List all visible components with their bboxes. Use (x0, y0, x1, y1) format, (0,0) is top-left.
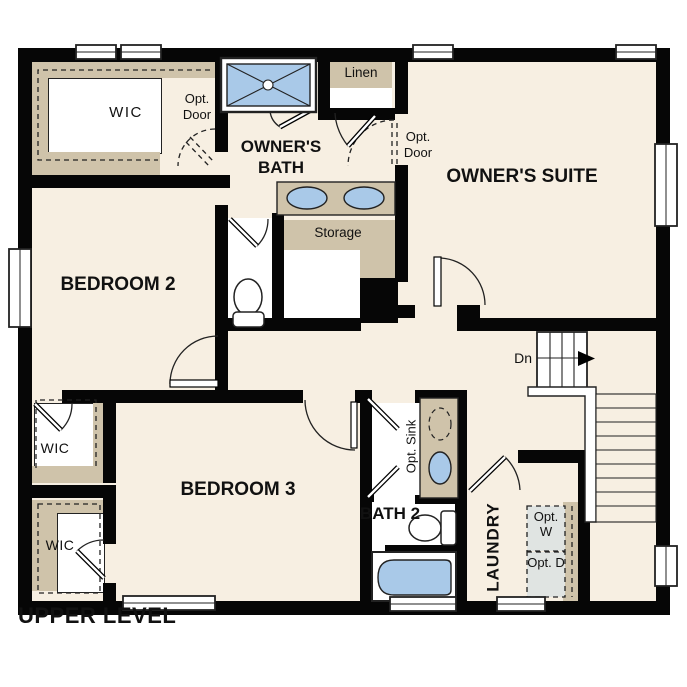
wall-bath-suite-lower (395, 165, 408, 282)
wall-bedroom2-top (18, 175, 230, 188)
wall-wic-bottom-right-b (103, 583, 116, 601)
storage-shelf-column (360, 250, 395, 278)
label-wic-top: WIC (96, 104, 156, 121)
wall-bath2-divider-b (415, 495, 455, 504)
wall-wic-bottom-right-a (103, 498, 116, 544)
label-stairs-down: Dn (496, 350, 532, 366)
label-owners-bath: OWNER'S BATH (226, 136, 336, 178)
wall-outer-top (18, 48, 670, 62)
wall-tub-alcove (385, 545, 455, 554)
wall-wic-divider (18, 485, 116, 498)
wall-hall-top (215, 318, 361, 331)
wall-laundry-right (578, 450, 590, 601)
wall-suite-bottom-a (395, 305, 415, 318)
wall-chase (360, 278, 398, 323)
floor-plan-upper-level: WIC Opt. Door Linen OWNER'S BATH Opt. Do… (0, 0, 687, 687)
wall-outer-right (656, 48, 670, 615)
label-opt-washer: Opt. W (527, 509, 565, 539)
label-laundry: LAUNDRY (484, 495, 504, 600)
label-linen: Linen (330, 65, 392, 81)
wic-top-shelving-top (32, 62, 215, 78)
wall-suite-bottom-corner (457, 305, 480, 331)
wall-bath2-right (455, 390, 467, 601)
wall-bedroom2-right (215, 205, 228, 390)
wall-wc-right (272, 213, 284, 331)
water-closet-floor (228, 218, 272, 318)
wic-top-shelving-bottom (32, 152, 160, 175)
label-wic-bottom: WIC (30, 537, 90, 553)
storage-floor (284, 247, 360, 318)
wic-mid-shelf-floor (34, 403, 95, 468)
wall-bath2-divider-a (360, 493, 374, 502)
label-bath2: BATH 2 (358, 504, 422, 524)
label-opt-door-left: Opt. Door (172, 91, 222, 123)
label-opt-sink: Opt. Sink (405, 401, 420, 493)
wall-linen-left (318, 62, 330, 110)
label-opt-dryer: Opt. D (527, 555, 565, 570)
label-storage: Storage (288, 225, 388, 241)
wall-bath-suite-upper (395, 62, 408, 114)
wic-mid-shelving-bottom (32, 466, 103, 483)
wall-bedroom3-top-a (62, 390, 303, 403)
linen-floor (330, 88, 392, 108)
wall-outer-left (18, 48, 32, 615)
plan-title: UPPER LEVEL (18, 603, 278, 628)
wall-bath2-vanity-top (415, 390, 455, 403)
label-opt-door-right: Opt. Door (396, 129, 440, 161)
label-owners-suite: OWNER'S SUITE (437, 164, 607, 190)
label-wic-mid: WIC (25, 440, 85, 456)
label-bedroom2: BEDROOM 2 (28, 274, 208, 296)
wall-linen-bottom (318, 108, 395, 120)
label-bedroom3: BEDROOM 3 (148, 479, 328, 501)
wall-suite-bottom-b (480, 318, 656, 331)
wall-wic-mid-right (103, 403, 116, 483)
